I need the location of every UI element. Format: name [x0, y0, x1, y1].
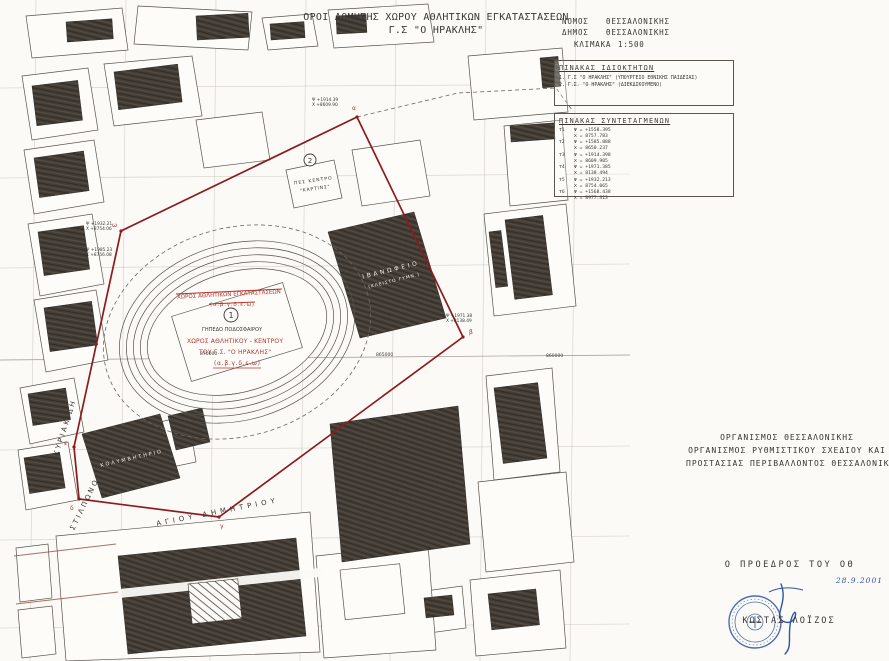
- parcel-marker-2: 2: [304, 154, 316, 166]
- point-values: Ψ = +1932.213Χ = 8754.065: [574, 178, 611, 189]
- building: [44, 301, 98, 351]
- svg-text:Χ +8754.06: Χ +8754.06: [86, 226, 112, 232]
- coordinate-row: Τ2 Ψ = +1585.888Χ = 8650.237: [559, 140, 729, 151]
- coordinates-table: ΠΙΝΑΚΑΣ ΣΥΝΤΕΤΑΓΜΕΝΩΝ Τ1 Ψ = +1558.395Χ …: [554, 113, 734, 197]
- svg-text:(α.β.γ.δ.ε.ω): (α.β.γ.δ.ε.ω): [214, 360, 260, 367]
- building: [66, 19, 113, 42]
- region-value: ΘΕΣΣΑΛΟΝΙΚΗΣ: [606, 16, 670, 27]
- point-values: Ψ = +1558.395Χ = 8757.783: [574, 128, 611, 139]
- parcel-marker-1: 1: [224, 308, 238, 322]
- stamp-and-signature: [693, 570, 887, 658]
- org-line1: ΟΡΓΑΝΙΣΜΟΣ ΘΕΣΣΑΛΟΝΙΚΗΣ: [686, 432, 888, 445]
- svg-text:2: 2: [308, 157, 312, 165]
- svg-text:ΧΩΡΟΣ ΑΘΛΗΤΙΚΟΥ - ΚΕΝΤΡΟΥ: ΧΩΡΟΣ ΑΘΛΗΤΙΚΟΥ - ΚΕΝΤΡΟΥ: [187, 338, 283, 345]
- building: [34, 151, 89, 198]
- point-values: Ψ = +1568.438Χ = 8977.313: [574, 190, 611, 201]
- building: [24, 452, 65, 493]
- title-line1: ΟΡΟΙ ΔΟΜΗΣΗΣ ΧΩΡΟΥ ΑΘΛΗΤΙΚΩΝ ΕΓΚΑΤΑΣΤΑΣΕ…: [298, 12, 574, 25]
- point-id: Τ4: [559, 165, 574, 176]
- scale-label: ΚΛΙΜΑΚΑ: [574, 39, 618, 50]
- president-name: ΚΩΣΤΑΣ ΛΟΪΖΟΣ: [701, 616, 877, 626]
- point-id: Τ5: [559, 178, 574, 189]
- point-id: Τ3: [559, 153, 574, 164]
- org-line3: ΠΡΟΣΤΑΣΙΑΣ ΠΕΡΙΒΑΛΛΟΝΤΟΣ ΘΕΣΣΑΛΟΝΙΚΗΣ: [686, 458, 888, 471]
- point-id: Τ2: [559, 140, 574, 151]
- coordinates-table-title: ΠΙΝΑΚΑΣ ΣΥΝΤΕΤΑΓΜΕΝΩΝ: [559, 117, 729, 125]
- coordinate-row: Τ4 Ψ = +1971.385Χ = 8138.494: [559, 165, 729, 176]
- title-line2: Γ.Σ "Ο ΗΡΑΚΛΗΣ": [298, 25, 574, 38]
- vertex-letter: δ: [70, 505, 74, 512]
- svg-text:Χ +8138.49: Χ +8138.49: [446, 318, 472, 324]
- owners-table-title: ΠΙΝΑΚΑΣ ΙΔΙΟΚΤΗΤΩΝ: [559, 64, 729, 72]
- building: [114, 64, 182, 110]
- building: [510, 123, 555, 142]
- building: [494, 383, 547, 464]
- scale-value: 1:500: [618, 39, 645, 50]
- owners-row: 2. Γ.Σ. "Ο ΗΡΑΚΛΗΣ" (ΔΙΕΚΔΙΚΟΥΜΕΝΟ): [559, 82, 729, 89]
- org-line2: ΟΡΓΑΝΙΣΜΟΣ ΡΥΘΜΙΣΤΙΚΟΥ ΣΧΕΔΙΟΥ ΚΑΙ: [686, 445, 888, 458]
- vertex-letter: γ: [220, 523, 224, 530]
- president-title: Ο ΠΡΟΕΔΡΟΣ ΤΟΥ ΟΘ: [693, 560, 887, 570]
- building: [32, 80, 83, 125]
- scanned-plan-document: α β γ δ ε ω 1 2 ΚΥΡΙΑΚΙΔΗ ΣΤΙΛΠΩΝΟΣ ΑΓΙΟ…: [0, 0, 889, 661]
- organisation-block: ΟΡΓΑΝΙΣΜΟΣ ΘΕΣΣΑΛΟΝΙΚΗΣ ΟΡΓΑΝΙΣΜΟΣ ΡΥΘΜΙ…: [686, 432, 888, 470]
- svg-text:1: 1: [228, 311, 233, 320]
- vertex-letter: β: [469, 329, 473, 336]
- building: [424, 595, 454, 618]
- owners-row: 1. Γ.Σ "Ο ΗΡΑΚΛΗΣ" (ΥΠΟΥΡΓΕΙΟ ΕΘΝΙΚΗΣ ΠΑ…: [559, 75, 729, 82]
- arena-building: [328, 212, 446, 338]
- vertex-letter: ω: [112, 222, 117, 229]
- region-row: ΔΗΜΟΣ ΘΕΣΣΑΛΟΝΙΚΗΣ: [562, 27, 670, 38]
- owners-table: ΠΙΝΑΚΑΣ ΙΔΙΟΚΤΗΤΩΝ 1. Γ.Σ "Ο ΗΡΑΚΛΗΣ" (Υ…: [554, 60, 734, 106]
- region-label: ΔΗΜΟΣ: [562, 27, 606, 38]
- point-values: Ψ = +1971.385Χ = 8138.494: [574, 165, 611, 176]
- svg-text:Χ +8609.90: Χ +8609.90: [312, 102, 338, 108]
- region-value: ΘΕΣΣΑΛΟΝΙΚΗΣ: [606, 27, 670, 38]
- vertex-letter: α: [352, 105, 356, 112]
- region-label: ΝΟΜΟΣ: [562, 16, 606, 27]
- coordinate-row: Τ3 Ψ = +1914.398Χ = 8609.905: [559, 153, 729, 164]
- signature-area: 28.9.2001 ΚΩΣΤΑΣ ΛΟΪΖΟΣ: [693, 570, 887, 658]
- coordinate-row: Τ5 Ψ = +1932.213Χ = 8754.065: [559, 178, 729, 189]
- building: [38, 226, 90, 276]
- region-header: ΝΟΜΟΣ ΘΕΣΣΑΛΟΝΙΚΗΣ ΔΗΜΟΣ ΘΕΣΣΑΛΟΝΙΚΗΣ ΚΛ…: [562, 16, 670, 50]
- point-id: Τ1: [559, 128, 574, 139]
- building: [488, 589, 540, 630]
- svg-text:Χ +8756.08: Χ +8756.08: [86, 252, 112, 258]
- point-id: Τ6: [559, 190, 574, 201]
- point-values: Ψ = +1914.398Χ = 8609.905: [574, 153, 611, 164]
- field-label: ΓΗΠΕΔΟ ΠΟΔΟΣΦΑΙΡΟΥ: [202, 327, 263, 333]
- svg-text:865000: 865000: [376, 352, 393, 358]
- scale-row: ΚΛΙΜΑΚΑ 1:500: [562, 39, 670, 50]
- coordinate-row: Τ1 Ψ = +1558.395Χ = 8757.783: [559, 128, 729, 139]
- document-title: ΟΡΟΙ ΔΟΜΗΣΗΣ ΧΩΡΟΥ ΑΘΛΗΤΙΚΩΝ ΕΓΚΑΤΑΣΤΑΣΕ…: [298, 12, 574, 37]
- svg-text:870000: 870000: [200, 351, 217, 357]
- signature-flourish-icon: [769, 588, 803, 592]
- point-values: Ψ = +1585.888Χ = 8650.237: [574, 140, 611, 151]
- hatched-annex: [188, 579, 242, 624]
- svg-text:860000: 860000: [546, 353, 563, 359]
- coordinate-row: Τ6 Ψ = +1568.438Χ = 8977.313: [559, 190, 729, 201]
- building: [196, 13, 249, 40]
- building: [168, 408, 210, 450]
- building: [330, 406, 470, 562]
- region-row: ΝΟΜΟΣ ΘΕΣΣΑΛΟΝΙΚΗΣ: [562, 16, 670, 27]
- approval-block: Ο ΠΡΟΕΔΡΟΣ ΤΟΥ ΟΘ 28.9.2001 ΚΩΣΤΑΣ ΛΟΪΖΟ…: [693, 560, 887, 660]
